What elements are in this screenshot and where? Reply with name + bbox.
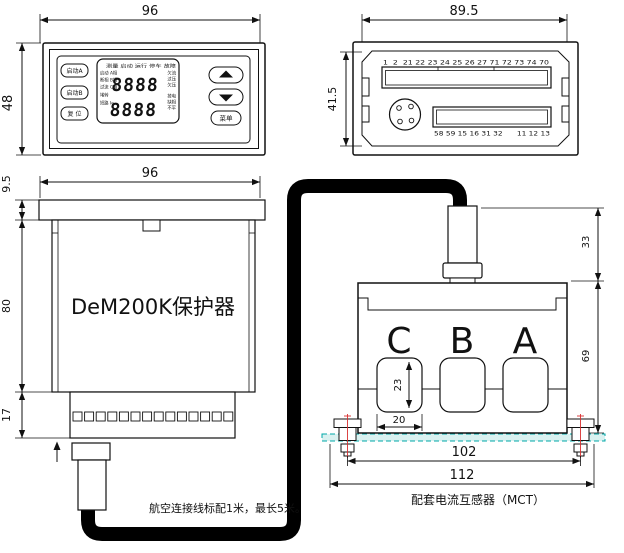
ct-window-a bbox=[503, 358, 548, 412]
window-height-dim-label: 23 bbox=[393, 379, 404, 392]
window-width-dim-label: 20 bbox=[393, 415, 406, 426]
connector-pin-hole bbox=[398, 119, 403, 124]
dimension-drawing: 96 48 启动A 启动B 复 位 测量 启动 运行 停车 故障 启动 A相 断… bbox=[0, 0, 624, 553]
terminal-block bbox=[70, 392, 235, 438]
ct-window-b bbox=[440, 358, 485, 412]
aviation-plug-collar bbox=[72, 443, 110, 460]
side-mount-clip bbox=[562, 106, 569, 122]
lcd-right-label: 欠流 bbox=[167, 70, 176, 77]
lcd-right-label: 掉电 bbox=[167, 93, 176, 100]
terminal-height-dim-label: 17 bbox=[0, 408, 13, 422]
reset-button-label: 复 位 bbox=[68, 110, 82, 118]
bolt-span-dim-label: 102 bbox=[452, 445, 477, 460]
lcd-right-label: 过压 bbox=[167, 76, 176, 83]
round-connector-socket bbox=[390, 99, 421, 130]
phase-label-b: B bbox=[450, 321, 475, 362]
side-mount-clip bbox=[562, 78, 569, 96]
stem-height-dim-label: 33 bbox=[581, 236, 592, 249]
lcd-status-row: 测量 启动 运行 停车 故障 bbox=[106, 63, 177, 70]
dimension-drawing-page: 96 48 启动A 启动B 复 位 测量 启动 运行 停车 故障 启动 A相 断… bbox=[0, 0, 624, 553]
ct-body-height-dim-label: 69 bbox=[581, 350, 592, 363]
menu-button-label: 菜单 bbox=[220, 114, 234, 123]
lcd-left-label: 堵转 bbox=[100, 92, 109, 99]
rear-bottom-terminal-numbers: 58 59 15 16 31 32 11 12 13 bbox=[434, 131, 550, 138]
phase-label-a: A bbox=[513, 321, 538, 362]
rear-height-dim-label: 41.5 bbox=[326, 87, 339, 112]
side-mount-clip bbox=[362, 106, 369, 122]
front-height-dim-label: 48 bbox=[1, 95, 16, 112]
mounting-plate bbox=[322, 434, 605, 441]
cable-note: 航空连接线标配1米，最长5米。 bbox=[149, 501, 306, 515]
insert-direction-arrow-head bbox=[54, 442, 61, 451]
rear-view: 89.5 41.5 1 2 21 22 23 24 25 26 27 71 72… bbox=[326, 4, 578, 155]
side-view: 96 DeM200K保护器 bbox=[0, 166, 265, 510]
seven-seg-row-2: 8888 bbox=[109, 100, 158, 121]
top-latch-notch bbox=[143, 220, 160, 231]
lcd-right-label: 不平 bbox=[167, 106, 176, 112]
front-width-dim-label: 96 bbox=[142, 4, 159, 19]
connector-pin-hole bbox=[409, 104, 414, 109]
lcd-right-label: 欠压 bbox=[167, 82, 176, 89]
connector-pin-hole bbox=[397, 106, 402, 111]
start-b-button-label: 启动B bbox=[66, 89, 82, 97]
connector-pin-hole bbox=[409, 118, 414, 123]
side-mount-clip bbox=[362, 78, 369, 96]
device-model-label: DeM200K保护器 bbox=[71, 295, 235, 319]
side-width-dim-label: 96 bbox=[142, 166, 159, 181]
start-a-button-label: 启动A bbox=[66, 67, 83, 75]
overall-width-dim-label: 112 bbox=[450, 468, 475, 483]
front-view: 96 48 启动A 启动B 复 位 测量 启动 运行 停车 故障 启动 A相 断… bbox=[1, 4, 265, 155]
rear-top-terminal-strip-inner bbox=[386, 71, 548, 86]
ct-connector-ring bbox=[443, 263, 482, 278]
phase-label-c: C bbox=[386, 321, 411, 362]
ct-caption: 配套电流互感器（MCT） bbox=[411, 492, 545, 507]
rear-bottom-terminal-strip-inner bbox=[437, 110, 548, 124]
current-transformer-view: C B A 23 20 33 69 bbox=[322, 206, 605, 507]
ct-connector-stem bbox=[448, 206, 477, 263]
rear-width-dim-label: 89.5 bbox=[450, 4, 479, 19]
flange-height-dim-label: 9.5 bbox=[0, 175, 13, 193]
rear-top-terminal-numbers: 1 2 21 22 23 24 25 26 27 71 72 73 74 70 bbox=[383, 60, 549, 67]
lcd-right-label: 缺相 bbox=[167, 99, 176, 106]
seven-seg-row-1: 8888 bbox=[111, 75, 160, 96]
aviation-plug-body bbox=[78, 460, 106, 510]
mounting-flange bbox=[39, 200, 265, 220]
body-height-dim-label: 80 bbox=[0, 299, 13, 313]
